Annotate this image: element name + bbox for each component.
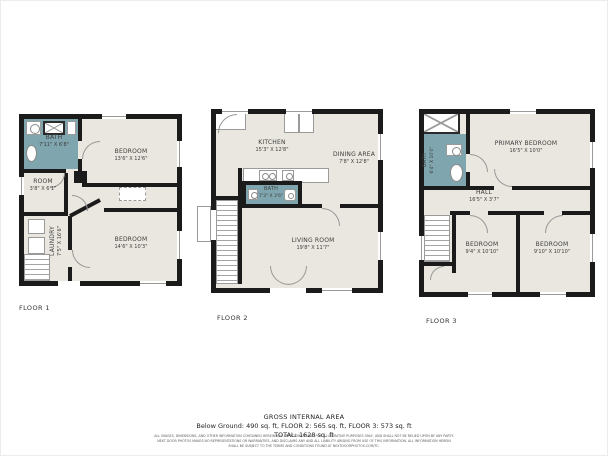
room-name: DINING AREA <box>322 152 386 159</box>
window <box>468 292 492 297</box>
room-dims: 15'3" X 12'8" <box>232 148 312 154</box>
door-arc <box>470 154 488 172</box>
window <box>140 281 166 286</box>
wall-segment <box>242 204 322 208</box>
floor-1-label: FLOOR 1 <box>19 304 50 312</box>
floor-1-plan: BATH 7'11" X 6'8" BEDROOM 13'6" X 12'6" … <box>19 114 182 286</box>
wall-segment <box>104 208 177 212</box>
room-dims: 7'11" X 6'8" <box>32 143 76 149</box>
room-name: ROOM <box>24 179 62 186</box>
fridge-icon <box>284 114 299 133</box>
disclaimer: ALL IMAGES, DIMENSIONS, AND OTHER INFORM… <box>21 434 588 449</box>
room-dims: 16'5" X 10'0" <box>476 149 576 155</box>
room-dims: 7'3" X 3'6" <box>259 194 283 199</box>
wall-segment <box>516 215 520 292</box>
room-dims: 9'4" X 10'10" <box>452 250 512 256</box>
room-label-bedroom2: BEDROOM 14'6" X 10'3" <box>86 237 176 251</box>
sink-icon <box>446 144 462 156</box>
door-gap <box>58 281 80 286</box>
room-label-bedroom1: BEDROOM 13'6" X 12'6" <box>86 149 176 163</box>
room-name: BEDROOM <box>452 242 512 249</box>
chimney <box>74 171 87 183</box>
window <box>540 292 566 297</box>
room-name: LIVING ROOM <box>273 238 353 245</box>
window <box>322 288 352 293</box>
window <box>590 142 595 168</box>
room-label-kitchen: KITCHEN 15'3" X 12'8" <box>232 140 312 154</box>
room-label-room: ROOM 3'8" X 6'1" <box>24 179 62 193</box>
summary-areas: Below Ground: 490 sq. ft, FLOOR 2: 565 s… <box>1 422 607 430</box>
door-arc <box>72 195 88 211</box>
room-dims: 9'10" X 10'10" <box>521 250 583 256</box>
dryer-icon <box>28 237 45 254</box>
door-gap <box>270 288 306 293</box>
wall-segment <box>78 119 82 141</box>
room-dims: 7'8" X 12'8" <box>322 160 386 166</box>
room-label-bedroom2: BEDROOM 9'10" X 10'10" <box>521 242 583 256</box>
room-label-laundry: LAUNDRY 7'5" X 16'6" <box>50 211 66 271</box>
room-name: BEDROOM <box>86 149 176 156</box>
stairs-icon <box>216 200 238 284</box>
room-dims: 7'5" X 16'6" <box>58 211 64 271</box>
floor-2-label: FLOOR 2 <box>217 314 248 322</box>
room-label-hall: HALL 16'5" X 3'7" <box>439 190 529 204</box>
window <box>419 236 424 260</box>
room-name: BATH <box>259 187 283 193</box>
shower-icon <box>424 114 460 134</box>
wall-segment <box>68 267 72 281</box>
wall-segment <box>68 216 72 250</box>
cabinet-icon <box>67 121 76 135</box>
wall-segment <box>466 114 470 154</box>
room-dims: 14'6" X 10'3" <box>86 245 176 251</box>
room-name: KITCHEN <box>232 140 312 147</box>
window <box>286 109 312 114</box>
room-dims: 3'8" X 6'1" <box>24 187 62 193</box>
wall-segment <box>562 211 590 215</box>
door-arc <box>72 250 90 268</box>
summary-title: GROSS INTERNAL AREA <box>1 413 607 421</box>
room-label-living: LIVING ROOM 19'8" X 11'7" <box>273 238 353 252</box>
room-name: LAUNDRY <box>50 211 57 271</box>
window <box>177 231 182 259</box>
window <box>177 141 182 167</box>
stove-icon <box>259 170 277 181</box>
room-name: BEDROOM <box>86 237 176 244</box>
porch <box>197 206 211 242</box>
room-name: BEDROOM <box>521 242 583 249</box>
disclaimer-line: SHALL BE SUBJECT TO THE TERMS AND CONDIT… <box>21 444 588 449</box>
window <box>378 232 383 260</box>
door-arc <box>494 169 512 187</box>
floor-3-plan: BATH 6'4" X 10'0" PRIMARY BEDROOM 16'5" … <box>419 109 595 297</box>
door-gap <box>211 210 216 240</box>
room-dims: 6'4" X 10'0" <box>430 132 435 188</box>
floor-2-plan: KITCHEN 15'3" X 12'8" DINING AREA 7'8" X… <box>211 109 383 293</box>
fridge-icon <box>299 114 314 133</box>
room-dims: 16'5" X 3'7" <box>439 198 529 204</box>
room-name: BATH <box>32 135 76 142</box>
room-name: PRIMARY BEDROOM <box>476 141 576 148</box>
room-label-bath: BATH 6'4" X 10'0" <box>423 132 439 188</box>
washer-icon <box>28 219 45 234</box>
door-arc <box>545 215 563 233</box>
room-dims: 13'6" X 12'6" <box>86 157 176 163</box>
floor-3-label: FLOOR 3 <box>426 317 457 325</box>
stairs-icon <box>424 215 450 262</box>
room-name: BATH <box>423 132 429 188</box>
floorplan-canvas: BATH 7'11" X 6'8" BEDROOM 13'6" X 12'6" … <box>0 0 608 456</box>
closet-dashed <box>119 187 146 201</box>
room-label-bedroom1: BEDROOM 9'4" X 10'10" <box>452 242 512 256</box>
door-arc <box>322 208 340 226</box>
room-label-dining: DINING AREA 7'8" X 12'8" <box>322 152 386 166</box>
wall-segment <box>242 181 302 185</box>
window <box>222 109 248 114</box>
room-name: HALL <box>439 190 529 197</box>
room-label-bath: BATH 7'11" X 6'8" <box>32 135 76 149</box>
door-arc <box>288 266 307 285</box>
door-arc <box>470 215 488 233</box>
wall-segment <box>466 172 470 186</box>
room-dims: 19'8" X 11'7" <box>273 246 353 252</box>
sink-icon <box>26 121 41 135</box>
bathtub-icon <box>284 189 296 201</box>
sink-icon <box>248 189 258 200</box>
wall-segment <box>340 204 378 208</box>
shower-icon <box>43 121 65 135</box>
window <box>510 109 536 114</box>
wall-segment <box>238 168 242 284</box>
door-arc <box>270 266 289 285</box>
door-arc <box>430 266 444 280</box>
wall-segment <box>64 173 68 212</box>
wall-segment <box>78 159 82 171</box>
window <box>102 114 126 119</box>
room-label-primary-bedroom: PRIMARY BEDROOM 16'5" X 10'0" <box>476 141 576 155</box>
room-label-bath: BATH 7'3" X 3'6" <box>259 187 283 199</box>
sink-icon <box>282 170 294 181</box>
stairs-icon <box>24 254 50 281</box>
window <box>590 234 595 262</box>
